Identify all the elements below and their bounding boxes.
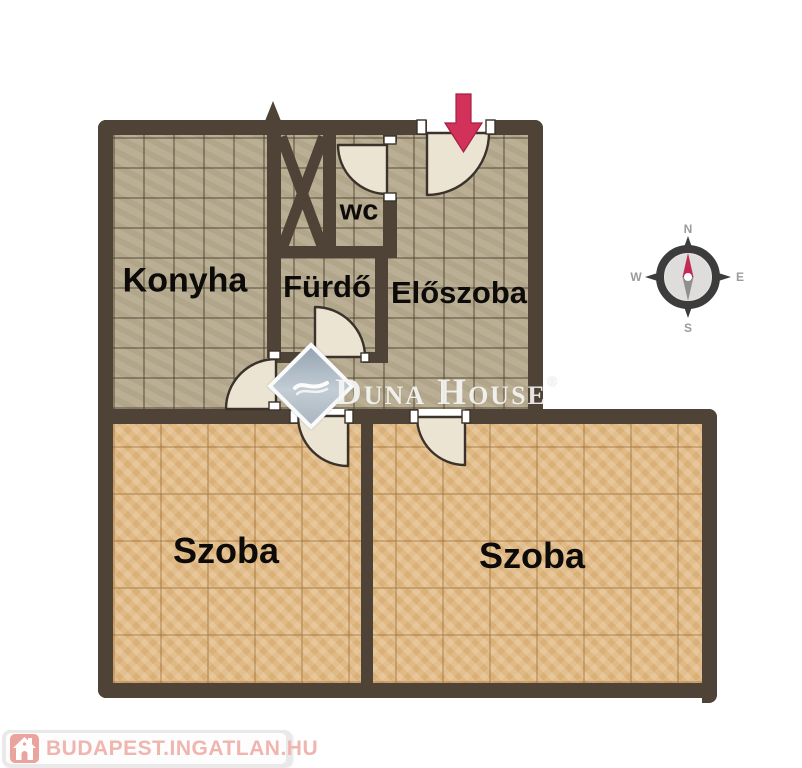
door-jamb [384, 193, 396, 201]
brand-name: Duna House [335, 372, 547, 413]
floorplan-canvas: Konyha Fürdő wc Előszoba Szoba Szoba Dun… [0, 0, 802, 768]
watermark-logo: Duna House® [253, 351, 543, 415]
compass-label-e: E [736, 270, 744, 284]
room-label-konyha: Konyha [123, 262, 248, 301]
compass-label-s: S [684, 321, 692, 335]
compass-pivot [684, 273, 692, 281]
watermark-brand-text: Duna House® [335, 351, 557, 415]
wall-tick-icon [265, 101, 281, 121]
room-label-furdo: Fürdő [283, 269, 371, 305]
compass-label-w: W [630, 270, 642, 284]
room-label-eloszoba: Előszoba [391, 275, 527, 311]
door-jamb [384, 136, 396, 144]
door-jamb [417, 120, 426, 134]
door-arc-wc [338, 145, 387, 194]
door-jamb [486, 120, 495, 134]
site-label: BUDAPEST.INGATLAN.HU [46, 733, 318, 764]
room-label-wc: wc [340, 195, 379, 228]
room-label-szoba-left: Szoba [173, 530, 279, 572]
room-label-szoba-right: Szoba [479, 535, 585, 577]
footer-logo: BUDAPEST.INGATLAN.HU [2, 730, 292, 767]
house-icon [10, 734, 39, 763]
registered-mark: ® [547, 375, 557, 390]
door-arc-szoba-right [417, 417, 465, 465]
footer-inner-panel: BUDAPEST.INGATLAN.HU [6, 733, 286, 764]
door-arc-furdo [315, 307, 365, 357]
compass-rose: N S E W [630, 221, 746, 335]
wave-icon [287, 362, 335, 410]
compass-label-n: N [684, 222, 693, 236]
